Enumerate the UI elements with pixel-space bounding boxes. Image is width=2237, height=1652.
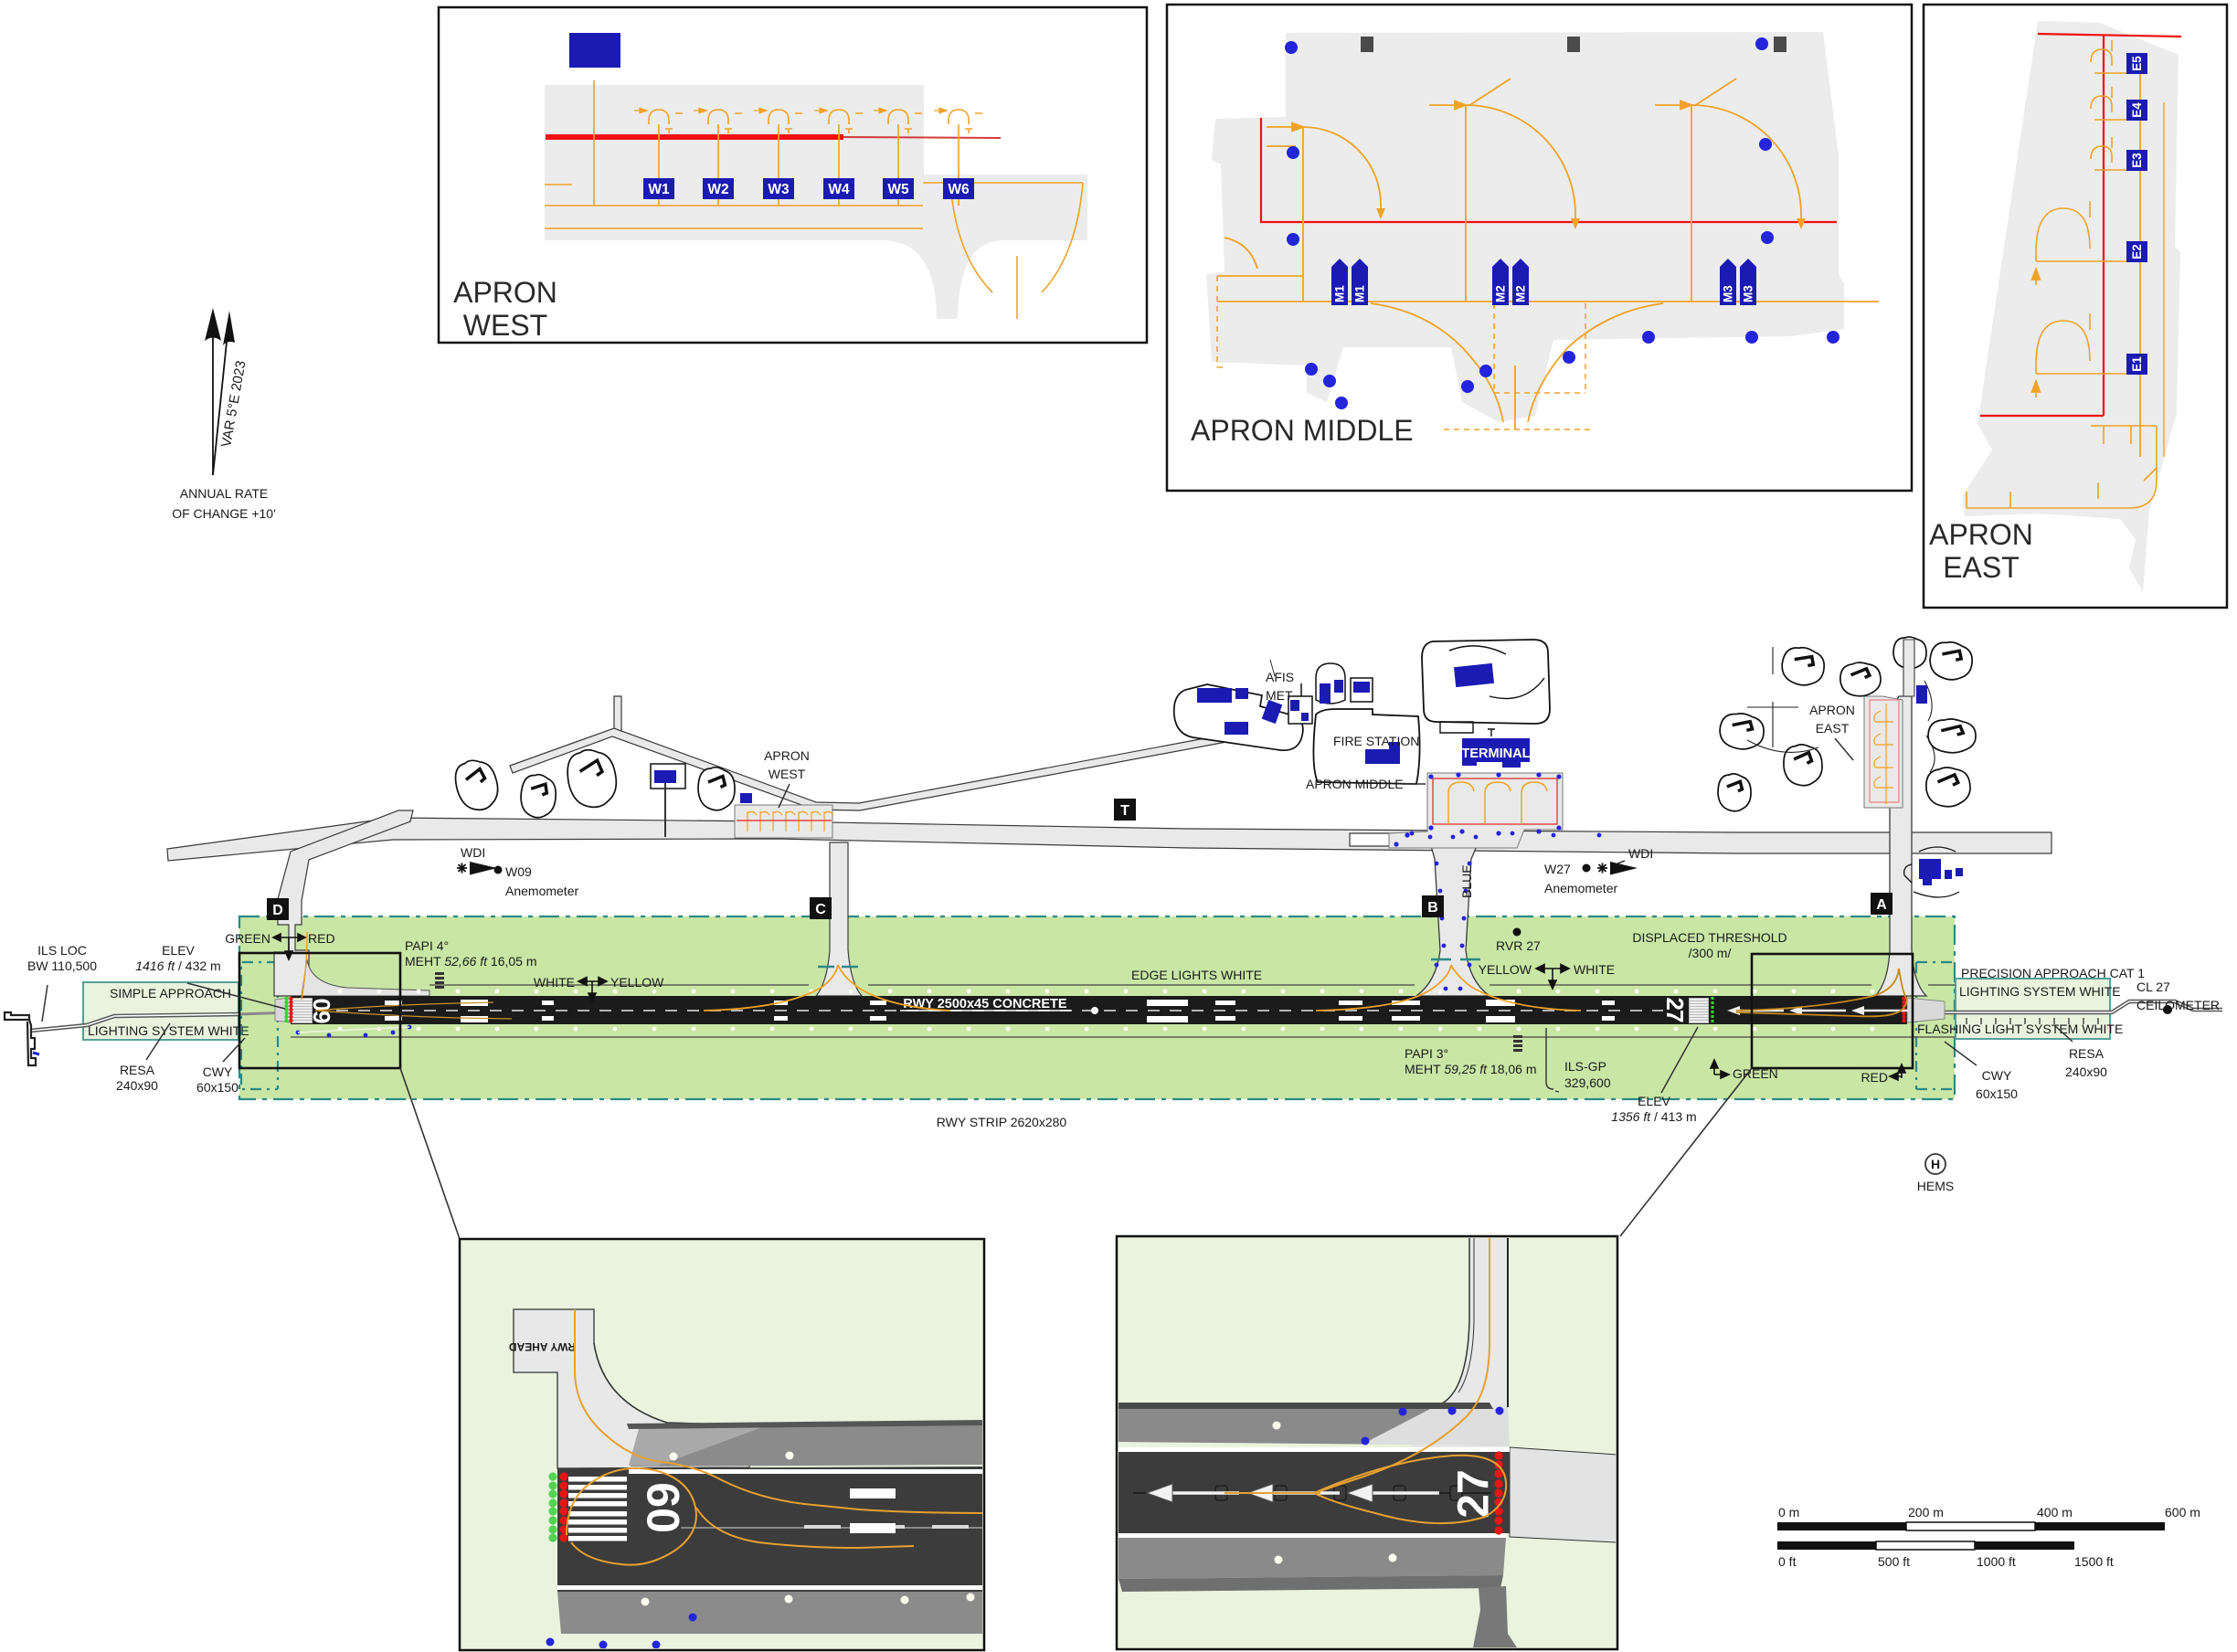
- svg-text:ELEV: ELEV: [162, 943, 195, 958]
- svg-text:APRON: APRON: [453, 276, 557, 309]
- svg-text:EDGE LIGHTS WHITE: EDGE LIGHTS WHITE: [1131, 968, 1262, 982]
- svg-text:APRON MIDDLE: APRON MIDDLE: [1306, 777, 1404, 791]
- svg-text:FIRE STATION: FIRE STATION: [1333, 734, 1419, 748]
- svg-text:W3: W3: [768, 182, 790, 197]
- svg-text:FLASHING LIGHT SYSTEM WHITE: FLASHING LIGHT SYSTEM WHITE: [1917, 1022, 2123, 1036]
- svg-text:1500 ft: 1500 ft: [2074, 1554, 2114, 1569]
- svg-text:1356 ft / 413 m: 1356 ft / 413 m: [1611, 1109, 1696, 1124]
- svg-text:27: 27: [1661, 998, 1689, 1022]
- svg-text:M1: M1: [1353, 285, 1367, 302]
- svg-text:RED: RED: [1861, 1070, 1888, 1085]
- svg-text:500 ft: 500 ft: [1878, 1554, 1910, 1569]
- svg-text:E3: E3: [2130, 153, 2144, 168]
- svg-text:APRON: APRON: [1929, 518, 2033, 551]
- svg-text:RESA: RESA: [2069, 1046, 2104, 1061]
- svg-text:RESA: RESA: [120, 1063, 155, 1077]
- svg-text:MET: MET: [1266, 688, 1293, 703]
- svg-text:M1: M1: [1333, 285, 1347, 302]
- svg-text:PAPI 3°: PAPI 3°: [1405, 1046, 1448, 1061]
- svg-text:W4: W4: [828, 182, 850, 197]
- svg-text:W09: W09: [505, 864, 532, 879]
- svg-text:E1: E1: [2130, 356, 2144, 372]
- svg-text:C: C: [815, 902, 826, 917]
- svg-text:WHITE: WHITE: [534, 975, 575, 990]
- svg-text:M3: M3: [1722, 285, 1735, 302]
- svg-text:CWY: CWY: [1982, 1068, 2012, 1083]
- svg-text:0 ft: 0 ft: [1778, 1554, 1797, 1569]
- svg-text:Anemometer: Anemometer: [505, 884, 578, 898]
- svg-text:ILS-GP: ILS-GP: [1564, 1059, 1606, 1074]
- svg-text:M3: M3: [1742, 285, 1755, 302]
- svg-text:AFIS: AFIS: [1266, 670, 1294, 684]
- svg-text:D: D: [272, 903, 283, 918]
- svg-text:ILS LOC: ILS LOC: [37, 943, 87, 958]
- svg-text:WEST: WEST: [463, 309, 547, 342]
- svg-text:240x90: 240x90: [2065, 1064, 2107, 1079]
- svg-text:W27: W27: [1544, 862, 1571, 876]
- svg-text:400 m: 400 m: [2037, 1505, 2073, 1520]
- svg-text:PRECISION APPROACH CAT 1: PRECISION APPROACH CAT 1: [1961, 966, 2145, 980]
- svg-text:APRON: APRON: [764, 748, 810, 763]
- svg-text:60x150: 60x150: [1976, 1086, 2018, 1101]
- svg-text:MEHT 52,66 ft 16,05 m: MEHT 52,66 ft 16,05 m: [405, 954, 537, 969]
- svg-text:WDI: WDI: [1628, 846, 1653, 861]
- svg-text:RWY STRIP 2620x280: RWY STRIP 2620x280: [937, 1115, 1067, 1129]
- svg-text:HEMS: HEMS: [1917, 1179, 1954, 1193]
- svg-text:APRON MIDDLE: APRON MIDDLE: [1191, 414, 1414, 447]
- svg-text:E2: E2: [2130, 244, 2144, 259]
- svg-text:H: H: [1931, 1157, 1940, 1171]
- svg-text:OF CHANGE +10': OF CHANGE +10': [172, 506, 276, 521]
- svg-text:EAST: EAST: [1943, 551, 2020, 584]
- svg-text:WDI: WDI: [461, 845, 485, 860]
- svg-text:RWY AHEAD: RWY AHEAD: [509, 1340, 576, 1353]
- svg-text:ELEV: ELEV: [1638, 1094, 1670, 1108]
- svg-text:A: A: [1876, 897, 1887, 913]
- svg-text:0 m: 0 m: [1778, 1505, 1799, 1520]
- svg-text:09: 09: [638, 1482, 689, 1533]
- svg-text:LIGHTING SYSTEM WHITE: LIGHTING SYSTEM WHITE: [1959, 984, 2121, 999]
- svg-text:BLUE: BLUE: [1459, 864, 1474, 898]
- svg-text:B: B: [1427, 900, 1438, 916]
- svg-text:YELLOW: YELLOW: [1479, 962, 1532, 977]
- svg-text:ANNUAL RATE: ANNUAL RATE: [180, 486, 268, 501]
- svg-text:27: 27: [1450, 1469, 1499, 1518]
- svg-text:WEST: WEST: [769, 767, 806, 781]
- svg-text:E5: E5: [2130, 56, 2144, 71]
- svg-text:1000 ft: 1000 ft: [1977, 1554, 2016, 1569]
- svg-text:200 m: 200 m: [1908, 1505, 1944, 1520]
- svg-text:SIMPLE APPROACH: SIMPLE APPROACH: [110, 986, 231, 1001]
- svg-text:M2: M2: [1514, 285, 1528, 302]
- svg-text:TERMINAL: TERMINAL: [1462, 747, 1531, 761]
- svg-text:EAST: EAST: [1816, 721, 1850, 736]
- svg-text:GREEN: GREEN: [1733, 1066, 1778, 1081]
- svg-text:600 m: 600 m: [2165, 1505, 2200, 1520]
- svg-text:YELLOW: YELLOW: [610, 975, 664, 990]
- svg-text:1416 ft / 432 m: 1416 ft / 432 m: [135, 958, 220, 973]
- svg-text:/300 m/: /300 m/: [1689, 946, 1732, 960]
- svg-text:Anemometer: Anemometer: [1544, 881, 1617, 895]
- svg-text:CEILOMETER: CEILOMETER: [2136, 998, 2220, 1012]
- svg-text:60x150: 60x150: [196, 1080, 239, 1095]
- svg-text:RED: RED: [308, 931, 335, 946]
- svg-text:APRON: APRON: [1809, 703, 1855, 717]
- svg-text:CWY: CWY: [203, 1064, 233, 1079]
- svg-text:WHITE: WHITE: [1574, 962, 1615, 977]
- svg-text:W2: W2: [707, 182, 728, 197]
- svg-text:240x90: 240x90: [116, 1078, 158, 1093]
- svg-text:GREEN: GREEN: [225, 931, 270, 946]
- svg-text:W5: W5: [887, 182, 909, 197]
- svg-text:RVR 27: RVR 27: [1496, 938, 1541, 953]
- svg-text:329,600: 329,600: [1564, 1075, 1611, 1090]
- svg-text:MEHT 59,25 ft 18,06 m: MEHT 59,25 ft 18,06 m: [1405, 1062, 1537, 1076]
- svg-text:T: T: [1120, 803, 1129, 819]
- svg-text:BW 110,500: BW 110,500: [27, 958, 97, 973]
- svg-text:PAPI 4°: PAPI 4°: [405, 938, 449, 953]
- svg-text:W6: W6: [948, 182, 970, 197]
- svg-text:DISPLACED THRESHOLD: DISPLACED THRESHOLD: [1632, 930, 1786, 945]
- svg-text:E4: E4: [2130, 102, 2144, 118]
- svg-text:CL 27: CL 27: [2136, 980, 2170, 994]
- svg-text:W1: W1: [648, 182, 670, 197]
- svg-text:M2: M2: [1494, 285, 1508, 302]
